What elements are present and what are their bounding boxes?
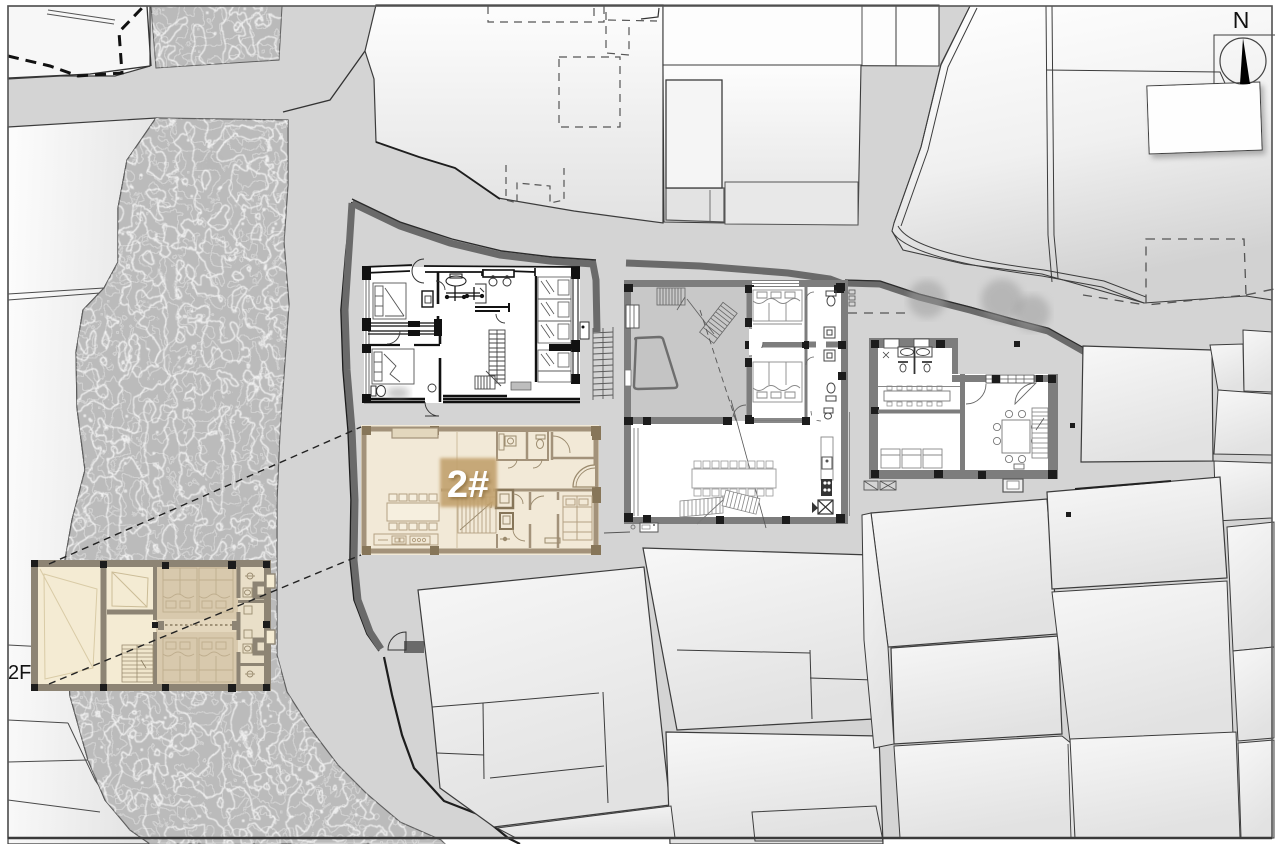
svg-text:2#: 2# xyxy=(447,464,489,506)
svg-text:N: N xyxy=(1233,7,1250,33)
svg-text:2F: 2F xyxy=(8,662,31,684)
